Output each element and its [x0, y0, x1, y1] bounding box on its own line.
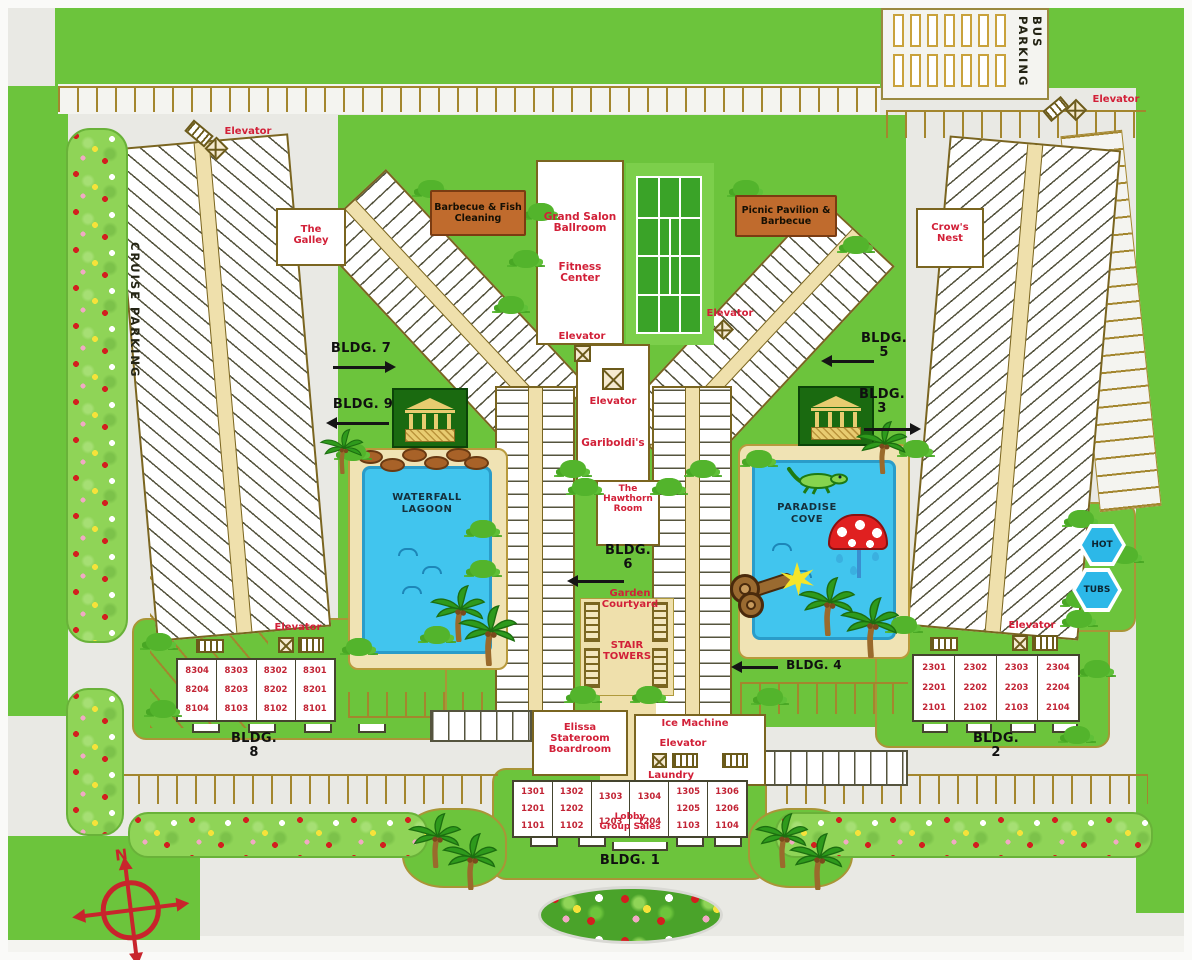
- bldg9-label: BLDG. 9: [328, 398, 398, 412]
- bush-icon: [470, 520, 496, 538]
- room-number: 1305: [676, 787, 700, 797]
- parking-stall: [978, 14, 989, 47]
- bus-stall-row-1: [893, 14, 1006, 47]
- room-number: 1103: [676, 821, 700, 831]
- compass-arrow: [117, 856, 132, 871]
- bldg8-room-grid: 8304820481048303820381038302820281028301…: [176, 658, 336, 722]
- elevator-icon: [602, 368, 624, 390]
- pavilion-roof: [812, 396, 860, 407]
- room-column: 130112011101: [514, 782, 553, 836]
- bush-icon: [656, 478, 682, 496]
- unit-stripes: [700, 388, 731, 716]
- court-line: [679, 178, 681, 332]
- pavilion-columns: [409, 414, 451, 429]
- room-number: 1306: [715, 787, 739, 797]
- building-foot: [612, 842, 668, 851]
- room-number: 8302: [264, 666, 288, 676]
- room-number: 1301: [521, 787, 545, 797]
- room-number: 8304: [185, 666, 209, 676]
- bldg2-label: BLDG.2: [968, 732, 1024, 760]
- unit-strip-west: [430, 710, 532, 742]
- parking-stall: [995, 54, 1006, 87]
- bush-icon: [513, 250, 539, 268]
- room-column: 130512051103: [669, 782, 708, 836]
- pavilion-base: [405, 429, 455, 442]
- room-number: 8104: [185, 704, 209, 714]
- room-number: 8303: [225, 666, 249, 676]
- room-column: 830182018101: [296, 660, 334, 720]
- hatch-icon: [196, 639, 224, 653]
- elevator-icon: [574, 345, 591, 362]
- elevator-label-laundry: Elevator: [648, 738, 718, 749]
- room-number: 2302: [964, 663, 988, 673]
- waterfall-rock-icon: [402, 448, 427, 462]
- bldg6-label: BLDG.6: [600, 544, 656, 572]
- bush-icon: [498, 296, 524, 314]
- room-number: 1206: [715, 804, 739, 814]
- elevator-label-bldg8: Elevator: [266, 622, 330, 633]
- left-hedge-lower: [66, 688, 124, 836]
- unit-stripes: [543, 388, 574, 716]
- room-number: 8103: [225, 704, 249, 714]
- room-number: 1202: [560, 804, 584, 814]
- bldg7-arrow: [333, 366, 385, 369]
- hatch-icon: [1032, 635, 1058, 651]
- bldg6-arrow: [578, 580, 624, 583]
- fitness-center-label: FitnessCenter: [538, 262, 622, 284]
- cannon-wheel: [738, 592, 764, 618]
- elevator-label-tennis: Elevator: [700, 308, 760, 319]
- palm-tree-icon: [440, 832, 498, 890]
- room-column: 230122012101: [914, 656, 955, 720]
- bush-icon: [757, 688, 783, 706]
- building-foot: [922, 724, 948, 733]
- ice-machine-label: Ice Machine: [640, 718, 750, 729]
- bus-parking-label: BUS PARKING: [1016, 16, 1044, 96]
- building-foot: [530, 838, 558, 847]
- room-column: 230322032103: [997, 656, 1038, 720]
- room-number: 2103: [1005, 703, 1029, 713]
- bldg5-arrow: [832, 360, 874, 363]
- room-number: 1302: [560, 787, 584, 797]
- room-column: 230222022102: [955, 656, 996, 720]
- grand-salon-label: Grand SalonBallroom: [538, 212, 622, 234]
- room-number: 2202: [964, 683, 988, 693]
- water-drop-icon: [836, 554, 843, 563]
- hatch-icon: [672, 753, 698, 768]
- room-number: 2201: [922, 683, 946, 693]
- parking-stall: [995, 14, 1006, 47]
- lobby-group-sales-label: LobbyGroup Sales: [592, 812, 668, 832]
- corridor: [528, 388, 543, 716]
- room-number: 1102: [560, 821, 584, 831]
- parking-stall: [978, 54, 989, 87]
- grand-salon-building: [536, 160, 624, 345]
- pavilion-columns: [815, 412, 857, 427]
- compass-arrow: [129, 952, 144, 960]
- wave-icon: [398, 548, 418, 556]
- room-column: 830282028102: [257, 660, 296, 720]
- building-foot: [578, 838, 606, 847]
- pavilion-roof: [406, 398, 454, 409]
- parking-stall: [910, 14, 921, 47]
- bush-icon: [570, 686, 596, 704]
- top-parking-comb: [58, 86, 880, 112]
- stair-towers-label: STAIRTOWERS: [601, 640, 653, 662]
- resort-map: BUS PARKING CRUISE PARKING TheGalley Cro…: [0, 0, 1192, 960]
- bldg3-label: BLDG.3: [856, 388, 908, 416]
- tennis-court: [636, 176, 702, 334]
- bush-icon: [746, 450, 772, 468]
- bldg4-label: BLDG. 4: [782, 658, 846, 672]
- building-foot: [358, 724, 386, 733]
- room-number: 8301: [303, 666, 327, 676]
- building-foot: [192, 724, 220, 733]
- building-foot: [714, 838, 742, 847]
- compass-rose: N: [72, 854, 194, 960]
- compass-arrow: [176, 896, 191, 911]
- flower-oval-bed: [538, 886, 723, 944]
- room-number: 2102: [964, 703, 988, 713]
- room-number: 1104: [715, 821, 739, 831]
- bldg5-label: BLDG.5: [858, 332, 910, 360]
- crows-nest-label: Crow'sNest: [918, 222, 982, 244]
- parking-stall: [961, 14, 972, 47]
- bush-icon: [636, 686, 662, 704]
- room-number: 8204: [185, 685, 209, 695]
- bldg3-arrow: [864, 428, 910, 431]
- bush-icon: [843, 236, 869, 254]
- elissa-boardroom-label: ElissaStateroomBoardroom: [534, 722, 626, 755]
- hot-label: HOT: [1091, 540, 1112, 550]
- bldg4-arrow: [742, 666, 778, 669]
- room-column: 830382038103: [217, 660, 256, 720]
- left-hedge-upper: [66, 128, 128, 643]
- room-number: 2304: [1046, 663, 1070, 673]
- elevator-icon: [1012, 635, 1028, 651]
- room-number: 8202: [264, 685, 288, 695]
- stair-tower-icon: [652, 648, 668, 688]
- stair-tower-icon: [584, 648, 600, 688]
- galley-label: TheGalley: [278, 224, 344, 246]
- bush-icon: [346, 638, 372, 656]
- room-number: 2104: [1046, 703, 1070, 713]
- building-foot: [676, 838, 704, 847]
- elevator-icon: [278, 637, 294, 653]
- palm-tree-icon: [838, 596, 900, 658]
- parking-stall: [944, 54, 955, 87]
- parking-stall: [961, 54, 972, 87]
- parking-stall: [927, 14, 938, 47]
- cruise-parking-label: CRUISE PARKING: [128, 242, 142, 382]
- room-number: 8102: [264, 704, 288, 714]
- waterfall-rock-icon: [464, 456, 489, 470]
- elevator-icon: [652, 753, 667, 768]
- room-column: 130212021102: [553, 782, 592, 836]
- barbecue-fish-cleaning-sign: Barbecue & FishCleaning: [430, 190, 526, 236]
- bush-icon: [690, 460, 716, 478]
- hatch-icon: [722, 753, 748, 768]
- garden-courtyard-label: GardenCourtyard: [590, 588, 670, 610]
- pavilion-bar: [405, 410, 455, 413]
- bush-icon: [1084, 660, 1110, 678]
- palm-tree-icon: [318, 428, 364, 474]
- corridor: [685, 388, 700, 716]
- palm-tree-icon: [456, 604, 518, 666]
- room-number: 8203: [225, 685, 249, 695]
- bush-icon: [572, 478, 598, 496]
- room-column: 830482048104: [178, 660, 217, 720]
- water-drop-icon: [872, 552, 879, 561]
- room-number: 2204: [1046, 683, 1070, 693]
- room-number: 8201: [303, 685, 327, 695]
- tubs-label: TUBS: [1084, 585, 1111, 595]
- picnic-pavilion-sign: Picnic Pavilion &Barbecue: [735, 195, 837, 237]
- pavilion-icon: [392, 388, 468, 448]
- room-number: 1101: [521, 821, 545, 831]
- alligator-icon: [786, 466, 850, 496]
- gariboldis-label: Gariboldi's: [578, 438, 648, 449]
- bldg1-label: BLDG. 1: [592, 854, 668, 868]
- water-drop-icon: [850, 566, 857, 575]
- compass-arrow: [71, 909, 86, 924]
- gariboldis-building: [576, 344, 650, 482]
- bush-icon: [146, 633, 172, 651]
- laundry-label: Laundry: [636, 770, 706, 781]
- court-line: [638, 294, 700, 296]
- umbrella-pole: [857, 550, 861, 578]
- bush-icon: [1066, 610, 1092, 628]
- hatch-icon: [298, 637, 324, 653]
- room-number: 2301: [922, 663, 946, 673]
- wave-icon: [402, 586, 422, 594]
- elevator-label-top-right: Elevator: [1086, 94, 1146, 105]
- elevator-label-bldg2: Elevator: [1000, 620, 1064, 631]
- bottom-left-hedge: [128, 812, 428, 858]
- building-foot: [304, 724, 332, 733]
- room-number: 2203: [1005, 683, 1029, 693]
- elevator-label-top-left: Elevator: [216, 126, 280, 137]
- palm-tree-icon: [787, 832, 845, 890]
- bldg8-label: BLDG.8: [226, 732, 282, 760]
- room-number: 2303: [1005, 663, 1029, 673]
- elevator-label-gariboldis: Elevator: [583, 396, 643, 407]
- room-number: 1205: [676, 804, 700, 814]
- room-column: 130612061104: [708, 782, 746, 836]
- bush-icon: [150, 700, 176, 718]
- room-number: 1303: [599, 792, 623, 802]
- court-line: [658, 178, 660, 332]
- room-number: 8101: [303, 704, 327, 714]
- court-line: [669, 217, 671, 294]
- bldg2-room-grid: 2301220121012302220221022303220321032304…: [912, 654, 1080, 722]
- parking-stall: [910, 54, 921, 87]
- room-column: 230422042104: [1038, 656, 1078, 720]
- bush-icon: [470, 560, 496, 578]
- parking-stall: [893, 14, 904, 47]
- bush-icon: [560, 460, 586, 478]
- pavilion-bar: [811, 408, 861, 411]
- grass-left-band: [8, 86, 68, 716]
- parking-stall: [944, 14, 955, 47]
- room-number: 2101: [922, 703, 946, 713]
- bus-stall-row-2: [893, 54, 1006, 87]
- hatch-icon: [930, 637, 958, 651]
- wave-icon: [772, 543, 792, 551]
- room-number: 1304: [638, 792, 662, 802]
- parking-stall: [893, 54, 904, 87]
- wave-icon: [422, 566, 442, 574]
- waterfall-rock-icon: [380, 458, 405, 472]
- hawthorn-room-label: TheHawthornRoom: [598, 484, 658, 514]
- bldg9-arrow: [337, 422, 389, 425]
- waterfall-lagoon-label: WATERFALLLAGOON: [372, 492, 482, 516]
- bottom-left-comb: [100, 774, 498, 804]
- bldg7-label: BLDG. 7: [326, 342, 396, 356]
- waterfall-rock-icon: [424, 456, 449, 470]
- room-number: 1201: [521, 804, 545, 814]
- parking-stall: [927, 54, 938, 87]
- elevator-label-grand-salon: Elevator: [552, 331, 612, 342]
- bush-icon: [1064, 726, 1090, 744]
